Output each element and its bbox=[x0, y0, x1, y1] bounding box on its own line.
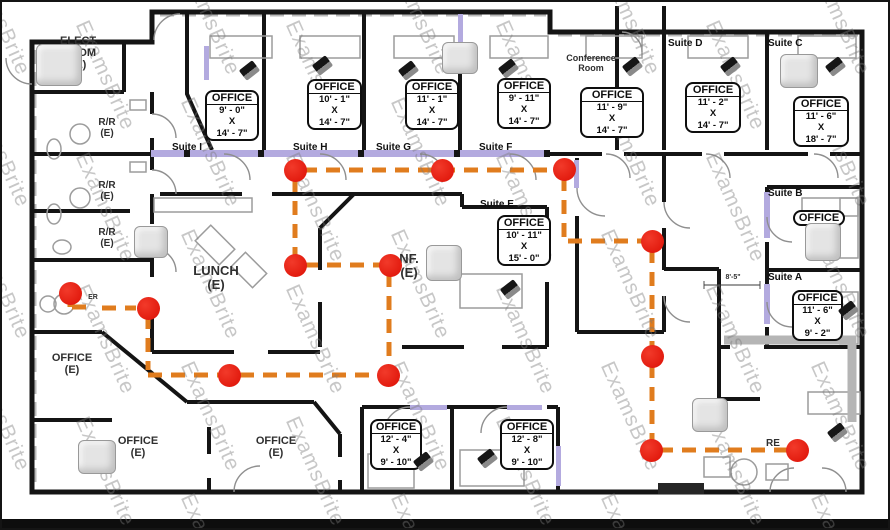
network-drop-dot[interactable] bbox=[379, 254, 402, 277]
network-drop-dot[interactable] bbox=[59, 282, 82, 305]
network-drops-layer bbox=[2, 2, 888, 528]
network-drop-dot[interactable] bbox=[786, 439, 809, 462]
network-drop-dot[interactable] bbox=[218, 364, 241, 387]
network-drop-dot[interactable] bbox=[431, 159, 454, 182]
network-drop-dot[interactable] bbox=[377, 364, 400, 387]
network-drop-dot[interactable] bbox=[553, 158, 576, 181]
network-drop-dot[interactable] bbox=[641, 345, 664, 368]
floor-plan: ExamsBriteExamsBriteExamsBriteExamsBrite… bbox=[0, 0, 890, 530]
network-drop-dot[interactable] bbox=[640, 439, 663, 462]
network-drop-dot[interactable] bbox=[284, 159, 307, 182]
network-drop-dot[interactable] bbox=[137, 297, 160, 320]
network-drop-dot[interactable] bbox=[284, 254, 307, 277]
network-drop-dot[interactable] bbox=[641, 230, 664, 253]
